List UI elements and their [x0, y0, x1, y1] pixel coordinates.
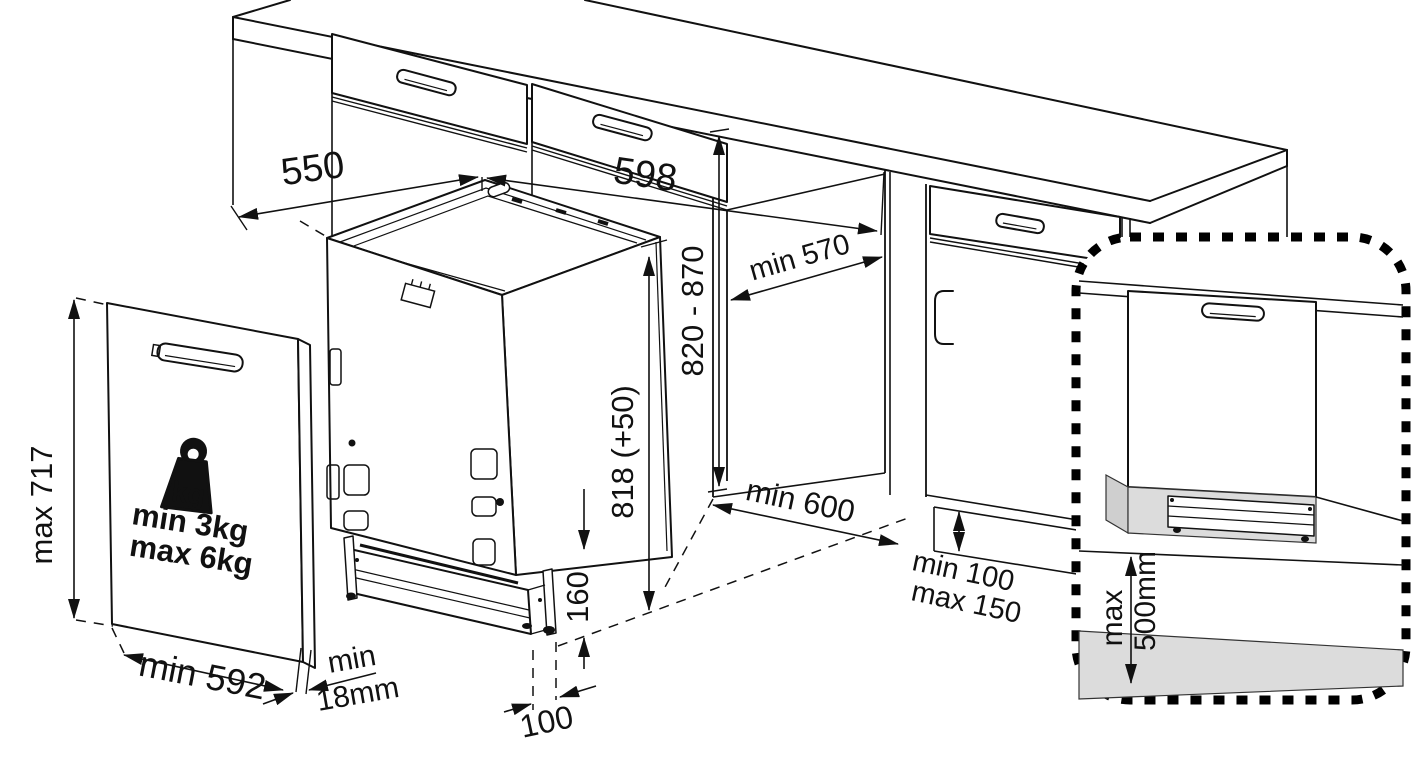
installation-diagram-page: kg min 3kg max 6kg 550 — [0, 0, 1428, 757]
panel-thickness-value-label: 18mm — [314, 671, 402, 718]
installed-door — [1128, 291, 1316, 497]
plinth-detail-value-label: 500mm — [1129, 551, 1162, 651]
dishwasher-side — [502, 237, 672, 575]
installation-diagram: kg min 3kg max 6kg 550 — [0, 0, 1428, 757]
plinth-detail-max-label: max — [1096, 590, 1129, 647]
leveling-foot-icon — [543, 626, 555, 634]
leveling-foot-icon — [346, 593, 356, 600]
niche-depth-label: min 570 — [746, 228, 854, 287]
door-handle-icon — [935, 291, 953, 344]
appliance-height-label: 818 (+50) — [605, 385, 640, 519]
niche-width-label: 598 — [611, 150, 680, 200]
kitchen-counter — [233, 0, 1287, 237]
door-handle-icon — [1202, 303, 1265, 321]
leveling-foot-icon — [522, 623, 532, 629]
panel-height-label: max 717 — [24, 446, 59, 565]
base-height-label: 160 — [560, 571, 595, 623]
worktop-height-label: 820 - 870 — [675, 246, 710, 377]
front-clearance-label: min 600 — [743, 472, 858, 529]
top-depth-label: 550 — [278, 144, 347, 194]
furniture-door-panel: kg min 3kg max 6kg — [107, 303, 315, 668]
panel-width-label: min 592 — [136, 643, 270, 708]
